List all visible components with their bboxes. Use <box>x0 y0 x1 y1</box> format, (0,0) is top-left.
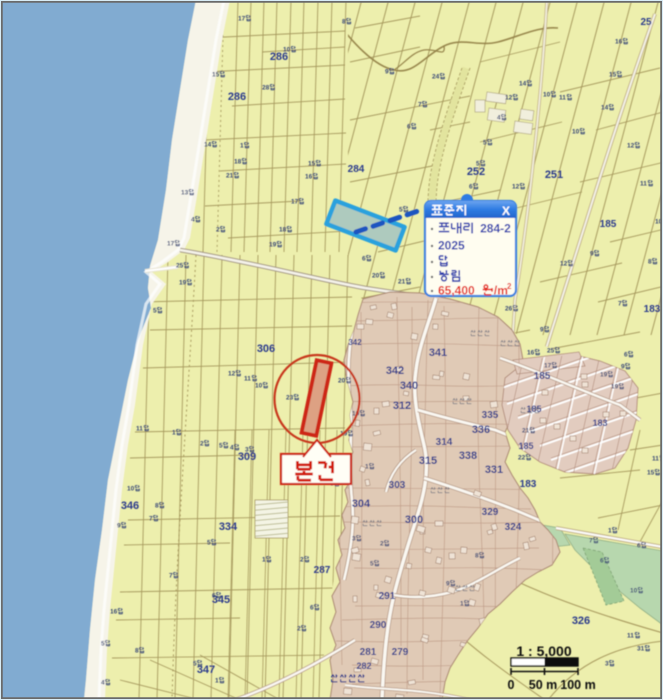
svg-text:9: 9 <box>446 581 450 588</box>
svg-text:304: 304 <box>352 498 371 510</box>
svg-text:17: 17 <box>238 16 246 23</box>
svg-text:281: 281 <box>360 647 377 658</box>
svg-text:19: 19 <box>179 280 187 287</box>
svg-text:1: 1 <box>460 601 464 608</box>
svg-text:286: 286 <box>228 91 246 103</box>
svg-text:282: 282 <box>356 661 371 671</box>
svg-text:19: 19 <box>600 372 608 379</box>
svg-text:6: 6 <box>624 352 628 359</box>
svg-text:7: 7 <box>418 102 422 109</box>
svg-text:12: 12 <box>505 95 513 102</box>
svg-text:183: 183 <box>592 418 607 428</box>
svg-text:20: 20 <box>338 378 346 385</box>
svg-text:11: 11 <box>627 633 634 640</box>
svg-text:7: 7 <box>149 516 153 523</box>
svg-text:342: 342 <box>386 365 404 377</box>
svg-text:303: 303 <box>389 480 406 491</box>
svg-text:7: 7 <box>618 301 622 308</box>
svg-text:11: 11 <box>652 456 659 463</box>
svg-text:314: 314 <box>436 437 453 448</box>
svg-text:312: 312 <box>393 400 411 412</box>
svg-text:5: 5 <box>101 641 105 648</box>
svg-text:19: 19 <box>611 384 619 391</box>
svg-text:6: 6 <box>407 124 411 131</box>
svg-text:0: 0 <box>508 678 515 692</box>
svg-text:1: 1 <box>365 464 369 471</box>
svg-text:2: 2 <box>216 227 220 234</box>
svg-text:185: 185 <box>534 371 551 382</box>
svg-text:6: 6 <box>310 605 314 612</box>
svg-text:14: 14 <box>601 105 609 112</box>
svg-text:284-2: 284-2 <box>480 221 511 235</box>
svg-text:65,400: 65,400 <box>438 283 475 297</box>
svg-text:251: 251 <box>545 169 563 181</box>
svg-text:5: 5 <box>483 140 487 147</box>
svg-text:21: 21 <box>522 428 530 435</box>
svg-text:17: 17 <box>167 241 175 248</box>
svg-text:1: 1 <box>172 430 176 437</box>
svg-text:7: 7 <box>589 538 593 545</box>
svg-text:4: 4 <box>497 115 501 122</box>
svg-text:26: 26 <box>505 306 513 313</box>
svg-text:2: 2 <box>200 441 204 448</box>
svg-text:11: 11 <box>136 426 143 433</box>
svg-text:183: 183 <box>644 304 661 315</box>
svg-text:185: 185 <box>518 441 533 451</box>
svg-text:284: 284 <box>348 164 365 175</box>
svg-text:3: 3 <box>245 447 249 454</box>
svg-text:31: 31 <box>637 646 645 653</box>
svg-text:1: 1 <box>240 143 244 150</box>
svg-text:346: 346 <box>121 500 139 512</box>
svg-text:6: 6 <box>600 558 604 565</box>
svg-text:9: 9 <box>385 69 389 76</box>
svg-text:28: 28 <box>262 85 270 92</box>
svg-text:14: 14 <box>519 81 527 88</box>
svg-text:11: 11 <box>244 376 251 383</box>
svg-text:4: 4 <box>191 217 195 224</box>
svg-text:50 m: 50 m <box>529 678 558 692</box>
svg-text:5: 5 <box>219 443 223 450</box>
svg-text:18: 18 <box>234 159 242 166</box>
svg-text:335: 335 <box>482 410 499 421</box>
svg-text:10: 10 <box>630 588 638 595</box>
svg-text:15: 15 <box>212 72 220 79</box>
svg-text:X: X <box>502 204 510 218</box>
svg-text:7: 7 <box>169 573 173 580</box>
svg-text:6: 6 <box>637 543 641 550</box>
svg-text:1: 1 <box>608 528 612 535</box>
svg-text:12: 12 <box>627 143 635 150</box>
svg-text:290: 290 <box>370 620 387 631</box>
svg-text:8: 8 <box>342 19 346 26</box>
svg-text:100 m: 100 m <box>560 678 595 692</box>
svg-text:342: 342 <box>348 338 362 347</box>
svg-text:329: 329 <box>482 507 499 518</box>
svg-text:11: 11 <box>640 181 647 188</box>
svg-text:21: 21 <box>226 173 234 180</box>
svg-text:25: 25 <box>547 348 555 355</box>
svg-text:2: 2 <box>507 282 512 291</box>
svg-text:22: 22 <box>518 455 526 462</box>
svg-text:15: 15 <box>609 72 617 79</box>
svg-text:16: 16 <box>305 174 313 181</box>
svg-text:336: 336 <box>472 424 490 436</box>
svg-text:5: 5 <box>399 207 403 214</box>
svg-text:10: 10 <box>127 486 135 493</box>
svg-text:20: 20 <box>372 273 380 280</box>
svg-text:12: 12 <box>512 184 520 191</box>
svg-text:2025: 2025 <box>438 238 465 252</box>
svg-text:5: 5 <box>207 540 211 547</box>
svg-text:17: 17 <box>544 363 552 370</box>
svg-text:24: 24 <box>432 74 440 81</box>
svg-text:9: 9 <box>117 523 121 530</box>
svg-text:16: 16 <box>527 350 535 357</box>
svg-text:4: 4 <box>101 680 105 687</box>
svg-text:8: 8 <box>155 503 159 510</box>
svg-text:8: 8 <box>475 553 479 560</box>
svg-text:3: 3 <box>352 536 356 543</box>
svg-text:5: 5 <box>370 561 374 568</box>
svg-text:1: 1 <box>262 557 266 564</box>
svg-text:3: 3 <box>605 661 609 668</box>
svg-text:2: 2 <box>300 557 304 564</box>
svg-text:23: 23 <box>286 395 294 402</box>
svg-text:19: 19 <box>269 242 277 249</box>
svg-text:15: 15 <box>308 161 316 168</box>
svg-text:25: 25 <box>176 263 184 270</box>
svg-text:21: 21 <box>398 279 406 286</box>
svg-text:10: 10 <box>572 129 580 136</box>
svg-text:/m: /m <box>494 283 508 297</box>
svg-text:14: 14 <box>204 142 212 149</box>
svg-text:6: 6 <box>362 256 366 263</box>
svg-text:18: 18 <box>279 227 287 234</box>
svg-text:8: 8 <box>135 648 139 655</box>
svg-text:2: 2 <box>297 626 301 633</box>
svg-text:10: 10 <box>283 47 291 54</box>
svg-text:1: 1 <box>215 678 219 685</box>
svg-text:331: 331 <box>485 464 503 476</box>
svg-text:10: 10 <box>543 92 551 99</box>
svg-text:13: 13 <box>181 190 189 197</box>
svg-text:185: 185 <box>600 219 617 230</box>
svg-text:334: 334 <box>219 521 238 533</box>
svg-text:340: 340 <box>400 380 418 392</box>
svg-text:8: 8 <box>648 259 652 266</box>
svg-text:9: 9 <box>621 364 625 371</box>
svg-text:16: 16 <box>110 609 118 616</box>
svg-text:11: 11 <box>559 95 566 102</box>
svg-text:2: 2 <box>380 541 384 548</box>
svg-text:12: 12 <box>228 371 236 378</box>
svg-text:338: 338 <box>459 450 477 462</box>
svg-text:300: 300 <box>405 514 423 526</box>
svg-text:16: 16 <box>615 39 623 46</box>
svg-text:5: 5 <box>193 661 197 668</box>
svg-text:324: 324 <box>505 522 522 533</box>
svg-text:291: 291 <box>379 591 396 602</box>
svg-text:17: 17 <box>291 199 299 206</box>
svg-text:183: 183 <box>520 479 537 490</box>
svg-text:5: 5 <box>153 308 157 315</box>
svg-text:279: 279 <box>392 647 409 658</box>
svg-text:12: 12 <box>560 261 568 268</box>
svg-text:1 : 5,000: 1 : 5,000 <box>516 643 571 659</box>
svg-text:326: 326 <box>572 615 590 627</box>
svg-text:10: 10 <box>255 383 263 390</box>
svg-text:9: 9 <box>590 251 594 258</box>
svg-text:341: 341 <box>429 347 447 359</box>
svg-text:252: 252 <box>467 166 485 178</box>
svg-text:15: 15 <box>647 470 655 477</box>
svg-text:306: 306 <box>257 343 275 355</box>
svg-text:4: 4 <box>230 445 234 452</box>
svg-text:5: 5 <box>476 161 480 168</box>
svg-text:287: 287 <box>314 565 331 576</box>
svg-text:9: 9 <box>540 327 544 334</box>
svg-text:6: 6 <box>469 184 473 191</box>
svg-text:6: 6 <box>212 593 216 600</box>
svg-text:25: 25 <box>640 17 652 28</box>
svg-text:315: 315 <box>419 455 437 467</box>
